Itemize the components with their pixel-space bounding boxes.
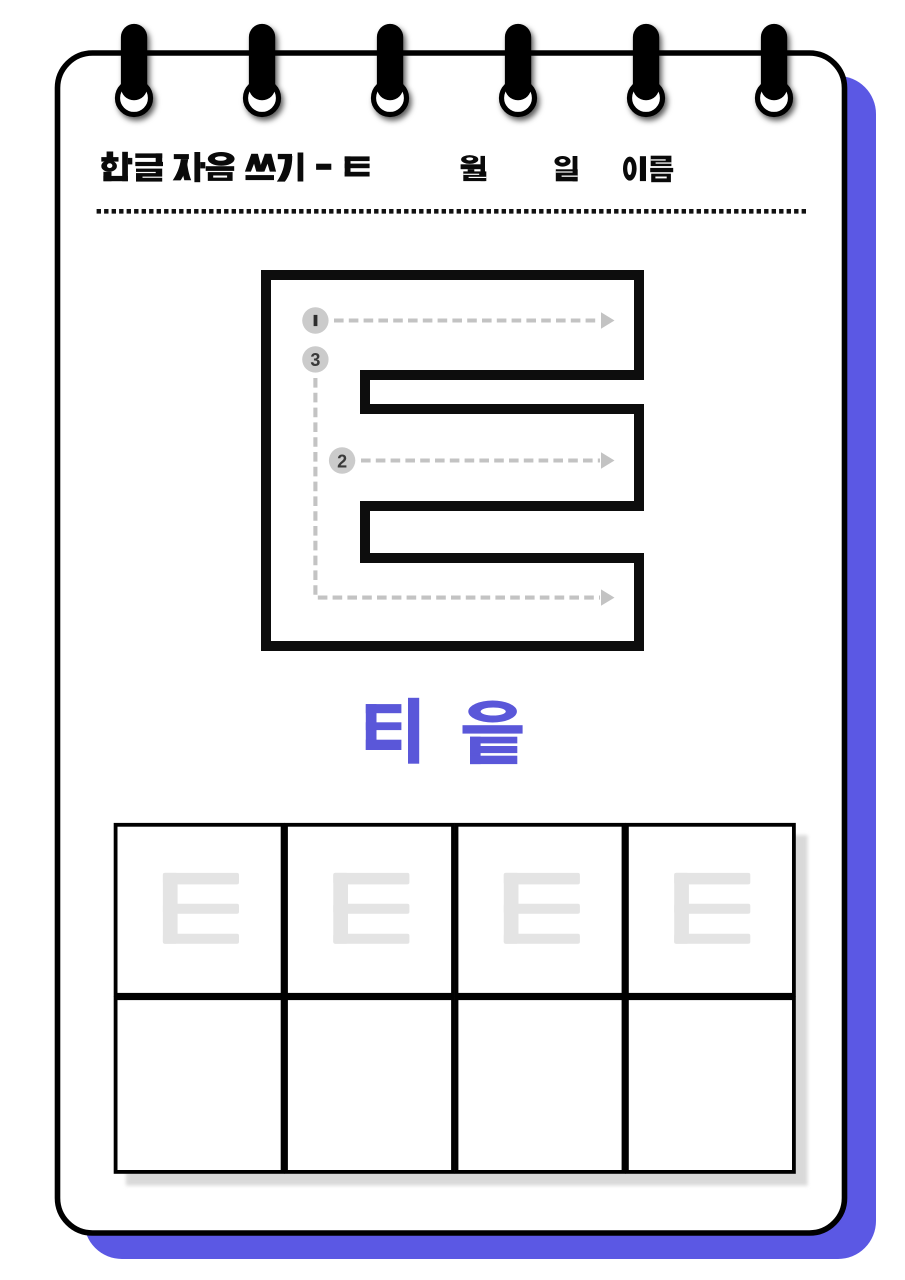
svg-text:2: 2 xyxy=(337,451,347,471)
svg-text:3: 3 xyxy=(310,350,320,370)
